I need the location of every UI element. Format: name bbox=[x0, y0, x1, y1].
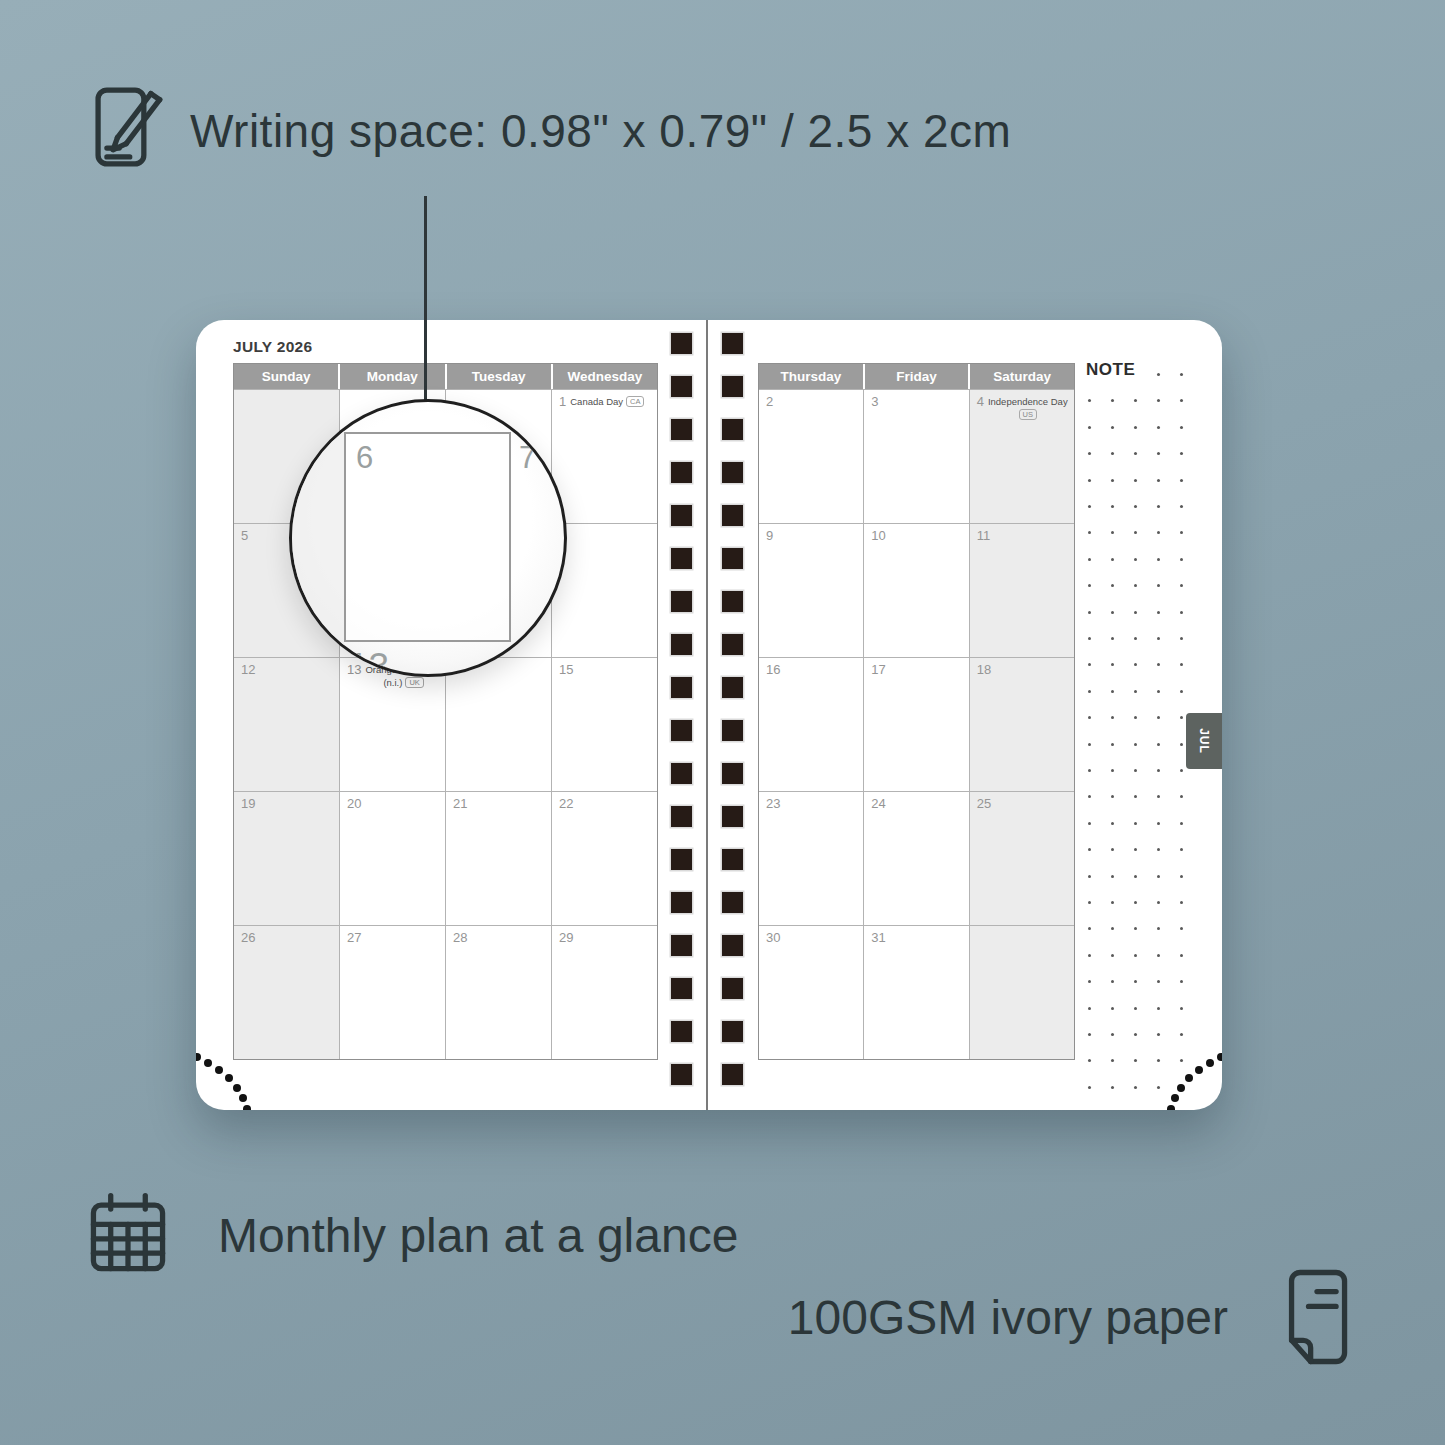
note-dot bbox=[1111, 954, 1114, 957]
note-dot bbox=[1157, 1086, 1160, 1089]
day-header-row: ThursdayFridaySaturday bbox=[759, 364, 1074, 389]
note-dot bbox=[1134, 505, 1137, 508]
note-dot bbox=[1111, 743, 1114, 746]
note-dot bbox=[1134, 954, 1137, 957]
note-dot bbox=[1111, 505, 1114, 508]
perforation-dot bbox=[1171, 1094, 1179, 1102]
note-dot bbox=[1088, 822, 1091, 825]
holiday-name: Canada Day bbox=[570, 396, 623, 407]
binding-hole bbox=[671, 892, 692, 913]
day-cell: 18 bbox=[970, 658, 1074, 791]
note-dot bbox=[1180, 426, 1183, 429]
note-dot bbox=[1180, 1059, 1183, 1062]
magnified-day-6: 6 bbox=[356, 440, 373, 476]
note-dot bbox=[1180, 822, 1183, 825]
note-dot bbox=[1134, 663, 1137, 666]
note-dot bbox=[1157, 373, 1160, 376]
binding-hole bbox=[671, 1021, 692, 1042]
binding-hole bbox=[671, 1064, 692, 1085]
holiday-name: Independence Day bbox=[988, 396, 1068, 407]
binding-hole bbox=[671, 333, 692, 354]
day-cell: 4Independence DayUS bbox=[970, 390, 1074, 523]
note-dot bbox=[1157, 795, 1160, 798]
binding-hole bbox=[671, 634, 692, 655]
note-dot bbox=[1157, 716, 1160, 719]
planner-product-image: Writing space: 0.98" x 0.79" / 2.5 x 2cm… bbox=[0, 0, 1445, 1445]
day-cell: 28 bbox=[446, 926, 552, 1059]
day-number: 17 bbox=[871, 663, 885, 676]
perforation-dot bbox=[1185, 1074, 1193, 1082]
holiday-label: Independence DayUS bbox=[988, 396, 1068, 420]
week-row: 232425 bbox=[759, 791, 1074, 925]
binding-hole bbox=[722, 634, 743, 655]
day-number: 26 bbox=[241, 931, 255, 944]
note-dot bbox=[1111, 1086, 1114, 1089]
note-dot bbox=[1157, 637, 1160, 640]
note-dot bbox=[1157, 875, 1160, 878]
month-tab-label: JUL bbox=[1197, 728, 1211, 754]
month-title: JULY 2026 bbox=[233, 338, 312, 356]
day-cell: 17 bbox=[864, 658, 969, 791]
day-number: 10 bbox=[871, 529, 885, 542]
note-dot bbox=[1088, 531, 1091, 534]
note-dot bbox=[1088, 1007, 1091, 1010]
note-dot bbox=[1157, 927, 1160, 930]
note-dot bbox=[1134, 637, 1137, 640]
day-number: 29 bbox=[559, 931, 573, 944]
note-dot bbox=[1088, 426, 1091, 429]
note-dot bbox=[1180, 531, 1183, 534]
day-cell: 3 bbox=[864, 390, 969, 523]
week-row: 3031 bbox=[759, 925, 1074, 1059]
month-tab: JUL bbox=[1186, 713, 1222, 769]
note-dot bbox=[1134, 399, 1137, 402]
day-number: 16 bbox=[766, 663, 780, 676]
note-dot bbox=[1157, 505, 1160, 508]
note-dot bbox=[1157, 848, 1160, 851]
note-dot bbox=[1111, 584, 1114, 587]
binding-hole bbox=[671, 978, 692, 999]
calendar-grid-icon bbox=[80, 1186, 176, 1282]
note-dot bbox=[1134, 1033, 1137, 1036]
note-dot bbox=[1180, 901, 1183, 904]
note-dot bbox=[1088, 1086, 1091, 1089]
note-dot bbox=[1180, 637, 1183, 640]
binding-hole bbox=[671, 376, 692, 397]
annotation-line bbox=[424, 196, 427, 402]
binding-hole bbox=[722, 720, 743, 741]
note-dot bbox=[1180, 743, 1183, 746]
note-dot bbox=[1180, 927, 1183, 930]
note-dot bbox=[1134, 822, 1137, 825]
day-cell: 27 bbox=[340, 926, 446, 1059]
note-dot bbox=[1111, 1007, 1114, 1010]
note-dot bbox=[1180, 373, 1183, 376]
day-cell: 23 bbox=[759, 792, 864, 925]
binding-hole bbox=[671, 548, 692, 569]
note-dot bbox=[1088, 663, 1091, 666]
page-gutter bbox=[706, 320, 708, 1110]
note-dot bbox=[1180, 769, 1183, 772]
day-cell: 20 bbox=[340, 792, 446, 925]
day-cell: 15 bbox=[552, 658, 657, 791]
week-row: 161718 bbox=[759, 657, 1074, 791]
day-number: 31 bbox=[871, 931, 885, 944]
note-dot bbox=[1111, 927, 1114, 930]
note-dot bbox=[1088, 927, 1091, 930]
note-dot bbox=[1111, 1033, 1114, 1036]
note-dot bbox=[1180, 875, 1183, 878]
day-number: 21 bbox=[453, 797, 467, 810]
note-dot bbox=[1134, 584, 1137, 587]
binding-hole bbox=[722, 462, 743, 483]
country-badge: CA bbox=[626, 396, 644, 407]
note-dot bbox=[1134, 769, 1137, 772]
calendar-right: ThursdayFridaySaturday234Independence Da… bbox=[758, 363, 1075, 1060]
day-cell bbox=[970, 926, 1074, 1059]
note-dot bbox=[1111, 980, 1114, 983]
week-row: 19202122 bbox=[234, 791, 657, 925]
note-dot bbox=[1111, 795, 1114, 798]
note-dot bbox=[1088, 558, 1091, 561]
binding-hole bbox=[671, 505, 692, 526]
day-cell: 19 bbox=[234, 792, 340, 925]
note-dot bbox=[1134, 848, 1137, 851]
perforation-dot bbox=[1206, 1059, 1214, 1067]
day-cell bbox=[446, 658, 552, 791]
day-number: 30 bbox=[766, 931, 780, 944]
note-dot bbox=[1157, 611, 1160, 614]
note-dot bbox=[1180, 611, 1183, 614]
day-header-row: SundayMondayTuesdayWednesday bbox=[234, 364, 657, 389]
note-dot bbox=[1088, 637, 1091, 640]
note-dot bbox=[1180, 584, 1183, 587]
note-dot bbox=[1157, 399, 1160, 402]
note-dot bbox=[1180, 399, 1183, 402]
binding-hole bbox=[671, 806, 692, 827]
note-dot bbox=[1088, 769, 1091, 772]
magnifier-circle: 6 7 13 bbox=[289, 399, 567, 677]
note-dot-grid bbox=[1086, 368, 1186, 1088]
binding-hole bbox=[671, 935, 692, 956]
binding-hole bbox=[722, 1021, 743, 1042]
binding-hole bbox=[722, 1064, 743, 1085]
day-cell: 1Canada DayCA bbox=[552, 390, 657, 523]
note-dot bbox=[1180, 1007, 1183, 1010]
note-dot bbox=[1157, 558, 1160, 561]
note-dot bbox=[1111, 1059, 1114, 1062]
day-number: 4 bbox=[977, 395, 984, 408]
binding-hole bbox=[671, 462, 692, 483]
day-number: 24 bbox=[871, 797, 885, 810]
paper-sheet-icon bbox=[1274, 1264, 1360, 1370]
perforation-dot bbox=[233, 1084, 241, 1092]
country-badge: UK bbox=[405, 677, 423, 688]
note-dot bbox=[1180, 980, 1183, 983]
note-dot bbox=[1157, 531, 1160, 534]
day-cell: 24 bbox=[864, 792, 969, 925]
day-number: 3 bbox=[871, 395, 878, 408]
binding-hole bbox=[722, 763, 743, 784]
day-cell: 30 bbox=[759, 926, 864, 1059]
note-dot bbox=[1111, 531, 1114, 534]
perforation-dot bbox=[239, 1094, 247, 1102]
day-number: 12 bbox=[241, 663, 255, 676]
binding-hole bbox=[722, 591, 743, 612]
day-header: Saturday bbox=[970, 364, 1074, 389]
note-dot bbox=[1180, 795, 1183, 798]
note-dot bbox=[1134, 479, 1137, 482]
note-dot bbox=[1157, 769, 1160, 772]
perforation-dot bbox=[215, 1066, 223, 1074]
note-dot bbox=[1180, 848, 1183, 851]
binding-hole bbox=[671, 677, 692, 698]
note-dot bbox=[1088, 743, 1091, 746]
day-cell bbox=[552, 524, 657, 657]
note-dot bbox=[1088, 479, 1091, 482]
note-dot bbox=[1088, 980, 1091, 983]
note-dot bbox=[1111, 637, 1114, 640]
holiday-note: (n.i.) bbox=[383, 677, 402, 688]
note-dot bbox=[1111, 452, 1114, 455]
note-dot bbox=[1111, 822, 1114, 825]
day-cell: 29 bbox=[552, 926, 657, 1059]
note-dot bbox=[1088, 954, 1091, 957]
day-cell: 31 bbox=[864, 926, 969, 1059]
note-dot bbox=[1088, 795, 1091, 798]
day-number: 13 bbox=[347, 663, 361, 676]
binding-hole bbox=[722, 978, 743, 999]
note-dot bbox=[1111, 690, 1114, 693]
day-number: 11 bbox=[977, 529, 991, 542]
binding-hole bbox=[722, 419, 743, 440]
day-number: 19 bbox=[241, 797, 255, 810]
day-number: 28 bbox=[453, 931, 467, 944]
day-cell: 25 bbox=[970, 792, 1074, 925]
note-dot bbox=[1157, 452, 1160, 455]
note-dot bbox=[1088, 848, 1091, 851]
note-dot bbox=[1111, 848, 1114, 851]
day-cell: 10 bbox=[864, 524, 969, 657]
note-dot bbox=[1111, 479, 1114, 482]
binding-hole bbox=[722, 892, 743, 913]
perforation-dot bbox=[243, 1105, 251, 1110]
binding-hole bbox=[722, 548, 743, 569]
binding-hole bbox=[722, 849, 743, 870]
note-dot bbox=[1111, 399, 1114, 402]
perforation-dot bbox=[196, 1053, 201, 1061]
day-header: Friday bbox=[865, 364, 971, 389]
binding-hole bbox=[722, 677, 743, 698]
note-dot bbox=[1157, 980, 1160, 983]
day-header: Thursday bbox=[759, 364, 865, 389]
note-dot bbox=[1157, 901, 1160, 904]
binding-hole bbox=[722, 376, 743, 397]
day-cell: 13Orangemen's Day(n.i.)UK bbox=[340, 658, 446, 791]
binding-hole bbox=[671, 591, 692, 612]
note-dot bbox=[1111, 426, 1114, 429]
note-dot bbox=[1134, 901, 1137, 904]
note-dot bbox=[1134, 1007, 1137, 1010]
note-dot bbox=[1157, 822, 1160, 825]
day-number: 27 bbox=[347, 931, 361, 944]
note-dot bbox=[1180, 663, 1183, 666]
note-dot bbox=[1088, 611, 1091, 614]
day-number: 1 bbox=[559, 395, 566, 408]
day-header: Monday bbox=[340, 364, 446, 389]
note-dot bbox=[1134, 716, 1137, 719]
note-dot bbox=[1134, 452, 1137, 455]
note-dot bbox=[1088, 875, 1091, 878]
perforation-dot bbox=[204, 1059, 212, 1067]
note-dot bbox=[1134, 426, 1137, 429]
paper-caption: 100GSM ivory paper bbox=[788, 1290, 1228, 1345]
day-number: 15 bbox=[559, 663, 573, 676]
binding-hole bbox=[722, 935, 743, 956]
monthly-plan-caption: Monthly plan at a glance bbox=[218, 1208, 738, 1263]
note-dot bbox=[1134, 1086, 1137, 1089]
week-row: 26272829 bbox=[234, 925, 657, 1059]
note-dot bbox=[1088, 690, 1091, 693]
perforation-dot bbox=[1177, 1084, 1185, 1092]
day-number: 5 bbox=[241, 529, 248, 542]
note-dot bbox=[1134, 531, 1137, 534]
day-number: 25 bbox=[977, 797, 991, 810]
note-dot bbox=[1180, 690, 1183, 693]
note-dot bbox=[1088, 584, 1091, 587]
note-dot bbox=[1134, 927, 1137, 930]
note-dot bbox=[1111, 901, 1114, 904]
note-dot bbox=[1111, 875, 1114, 878]
note-dot bbox=[1157, 663, 1160, 666]
note-dot bbox=[1111, 611, 1114, 614]
note-dot bbox=[1180, 1033, 1183, 1036]
binding-hole bbox=[722, 505, 743, 526]
perforation-dot bbox=[1217, 1053, 1222, 1061]
holiday-label: Canada DayCA bbox=[570, 396, 644, 407]
day-number: 9 bbox=[766, 529, 773, 542]
day-cell: 9 bbox=[759, 524, 864, 657]
week-row: 234Independence DayUS bbox=[759, 389, 1074, 523]
note-dot bbox=[1180, 479, 1183, 482]
note-dot bbox=[1134, 611, 1137, 614]
note-dot bbox=[1088, 452, 1091, 455]
pencil-note-icon bbox=[84, 74, 172, 180]
day-cell: 11 bbox=[970, 524, 1074, 657]
note-dot bbox=[1111, 558, 1114, 561]
country-badge: US bbox=[1019, 409, 1037, 420]
note-dot bbox=[1134, 875, 1137, 878]
binding-hole bbox=[671, 849, 692, 870]
note-dot bbox=[1088, 901, 1091, 904]
note-dot bbox=[1157, 743, 1160, 746]
note-dot bbox=[1088, 1059, 1091, 1062]
note-dot bbox=[1088, 505, 1091, 508]
note-dot bbox=[1088, 716, 1091, 719]
note-dot bbox=[1111, 663, 1114, 666]
perforation-dot bbox=[1167, 1105, 1175, 1110]
note-dot bbox=[1134, 795, 1137, 798]
day-number: 22 bbox=[559, 797, 573, 810]
week-row: 1213Orangemen's Day(n.i.)UK15 bbox=[234, 657, 657, 791]
note-dot bbox=[1134, 980, 1137, 983]
note-dot bbox=[1088, 1033, 1091, 1036]
day-header: Tuesday bbox=[447, 364, 553, 389]
note-dot bbox=[1111, 769, 1114, 772]
day-cell: 22 bbox=[552, 792, 657, 925]
note-dot bbox=[1134, 690, 1137, 693]
binding-hole bbox=[671, 419, 692, 440]
note-dot bbox=[1180, 716, 1183, 719]
note-dot bbox=[1134, 743, 1137, 746]
binding-hole bbox=[671, 763, 692, 784]
binding-hole bbox=[722, 806, 743, 827]
day-number: 23 bbox=[766, 797, 780, 810]
note-dot bbox=[1157, 1059, 1160, 1062]
day-header: Sunday bbox=[234, 364, 340, 389]
writing-space-caption: Writing space: 0.98" x 0.79" / 2.5 x 2cm bbox=[190, 104, 1011, 158]
binding-hole bbox=[671, 720, 692, 741]
note-dot bbox=[1157, 584, 1160, 587]
note-dot bbox=[1134, 1059, 1137, 1062]
day-cell: 26 bbox=[234, 926, 340, 1059]
day-cell: 21 bbox=[446, 792, 552, 925]
note-dot bbox=[1088, 399, 1091, 402]
day-cell: 16 bbox=[759, 658, 864, 791]
day-number: 2 bbox=[766, 395, 773, 408]
perforation-dot bbox=[225, 1074, 233, 1082]
note-dot bbox=[1157, 954, 1160, 957]
note-dot bbox=[1157, 1033, 1160, 1036]
note-dot bbox=[1157, 690, 1160, 693]
note-dot bbox=[1134, 558, 1137, 561]
day-number: 20 bbox=[347, 797, 361, 810]
note-dot bbox=[1180, 954, 1183, 957]
perforation-dot bbox=[1195, 1066, 1203, 1074]
note-dot bbox=[1180, 452, 1183, 455]
note-dot bbox=[1157, 1007, 1160, 1010]
note-dot bbox=[1111, 716, 1114, 719]
note-dot bbox=[1157, 479, 1160, 482]
week-row: 91011 bbox=[759, 523, 1074, 657]
note-dot bbox=[1180, 558, 1183, 561]
note-dot bbox=[1180, 505, 1183, 508]
binding-hole bbox=[722, 333, 743, 354]
day-number: 18 bbox=[977, 663, 991, 676]
note-dot bbox=[1157, 426, 1160, 429]
day-cell: 12 bbox=[234, 658, 340, 791]
day-header: Wednesday bbox=[553, 364, 657, 389]
day-cell: 2 bbox=[759, 390, 864, 523]
